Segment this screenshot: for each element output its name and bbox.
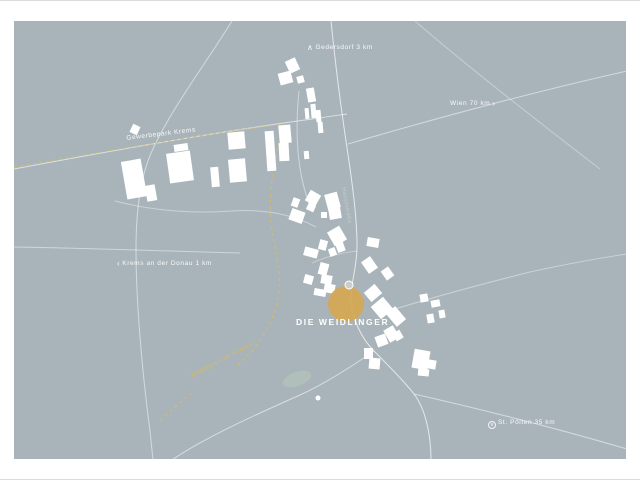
- chevron-up-icon: ∧: [305, 43, 315, 52]
- building: [285, 57, 300, 73]
- building: [305, 108, 310, 119]
- building: [318, 262, 330, 276]
- building: [381, 266, 395, 280]
- building: [419, 293, 428, 302]
- building: [288, 208, 305, 224]
- building: [174, 143, 189, 152]
- road: [382, 254, 626, 313]
- road: [115, 201, 316, 227]
- building: [121, 159, 147, 200]
- road: [415, 21, 600, 169]
- building: [306, 87, 316, 102]
- building: [430, 299, 440, 307]
- building: [227, 131, 245, 149]
- city-boundary-line: [158, 393, 192, 422]
- building: [166, 150, 194, 183]
- building: [318, 122, 324, 133]
- label-krems-an-der-donau: ‹Krems an der Donau 1 km: [115, 259, 212, 269]
- building: [328, 247, 337, 257]
- building: [366, 237, 379, 248]
- building: [303, 246, 319, 258]
- building: [279, 143, 290, 161]
- building: [315, 110, 321, 122]
- label-wien-text: Wien 70 km: [450, 100, 490, 107]
- building: [265, 131, 277, 172]
- site-map: ∧Gedersdorf 3 km Wien 70 km› Gewerbepark…: [14, 21, 626, 459]
- building: [426, 313, 434, 323]
- junction-dot: [316, 396, 321, 401]
- building: [369, 358, 381, 370]
- building: [364, 284, 382, 302]
- building: [328, 207, 342, 220]
- building: [305, 190, 321, 206]
- map-canvas: [14, 21, 626, 459]
- building: [278, 125, 292, 144]
- building: [210, 167, 220, 188]
- label-st-poelten: ∨St. Pölten 35 km: [488, 419, 555, 429]
- pond: [281, 367, 314, 390]
- label-gedersdorf: ∧Gedersdorf 3 km: [305, 43, 373, 53]
- building: [361, 256, 378, 274]
- road: [14, 247, 240, 253]
- label-krems-text: Krems an der Donau 1 km: [122, 260, 212, 267]
- building: [320, 274, 332, 285]
- building: [145, 184, 158, 201]
- chevron-down-icon: ∨: [488, 421, 496, 429]
- building: [296, 75, 305, 84]
- building: [438, 310, 445, 319]
- building: [304, 151, 310, 159]
- label-gedersdorf-text: Gedersdorf 3 km: [315, 44, 372, 51]
- chevron-right-icon: ›: [490, 99, 497, 108]
- building: [418, 369, 430, 377]
- building: [364, 348, 373, 359]
- label-st-poelten-text: St. Pölten 35 km: [498, 419, 555, 426]
- road: [136, 21, 232, 459]
- building: [321, 212, 327, 218]
- map-frame: ∧Gedersdorf 3 km Wien 70 km› Gewerbepark…: [0, 0, 640, 480]
- building: [228, 158, 247, 182]
- label-wien: Wien 70 km›: [450, 99, 498, 109]
- site-dot: [345, 281, 353, 289]
- building: [427, 359, 436, 369]
- building: [318, 239, 328, 251]
- site-title: DIE WEIDLINGER: [296, 317, 388, 327]
- building: [303, 274, 314, 285]
- building: [291, 197, 301, 208]
